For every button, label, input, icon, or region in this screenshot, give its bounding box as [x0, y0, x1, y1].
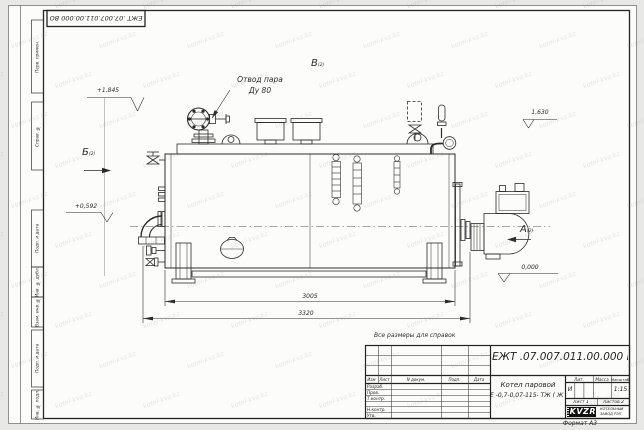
role-utv: Утв. — [367, 413, 391, 418]
col-header-doc: N докум. — [391, 377, 441, 382]
gauge-capsule — [439, 105, 446, 121]
kvzr-logo: KVZR — [567, 407, 596, 418]
margin-box-vzam-inv: Взам. инв. № — [32, 297, 44, 327]
level-mark-1630 — [523, 120, 557, 129]
sheet-number: Лист 1 — [565, 400, 597, 405]
col-header-data: Дата — [468, 377, 490, 382]
margin-box-sprav-no: Справ. № — [32, 102, 44, 170]
steam-outlet-label-line1: Отвод пара — [230, 76, 290, 84]
boiler-shell — [165, 154, 455, 268]
lit-header: Лит. — [565, 377, 593, 382]
margin-box-inv-podl: Инв. № подл. — [32, 390, 44, 419]
view-label-v: В(2) — [311, 59, 324, 70]
col-header-podp: Подп. — [441, 377, 468, 382]
margin-box-podp-data-2: Подп. и дата — [32, 330, 44, 387]
level-value-0592: +0,592 — [66, 204, 106, 210]
skid-frame — [172, 243, 446, 283]
burner-elbow — [139, 212, 166, 245]
level-gauges — [332, 154, 400, 211]
role-razrab: Разраб. — [367, 384, 391, 389]
level-mark-1845 — [87, 98, 144, 112]
burner-assembly — [453, 183, 529, 267]
view-label-b: Б(2) — [82, 148, 95, 159]
deck-hatch-2 — [291, 119, 322, 145]
boiler-deck — [177, 144, 433, 154]
view-arrow-b — [84, 168, 111, 173]
view-label-b-sheet-ref: (2) — [89, 152, 95, 157]
margin-box-inv-dubl: Инв. № дубл. — [32, 267, 44, 297]
company-name-line2: ЗАВОД РЭП — [600, 412, 630, 416]
sheets-total: Листов 2 — [597, 400, 630, 405]
company-name-line1: КОТЕЛЬНЫЙ — [600, 407, 630, 411]
steam-outlet-valve — [188, 108, 230, 144]
role-prov: Пров. — [367, 390, 391, 395]
deck-fittings — [222, 102, 456, 155]
level-value-0000: 0,000 — [508, 265, 552, 271]
gauge-column-2 — [353, 156, 362, 211]
steam-outlet-label-line2: Ду 80 — [244, 87, 276, 95]
hidden-outline — [408, 102, 422, 122]
format-label: Формат А3 — [535, 420, 625, 427]
kvzr-logo-text: KVZR — [570, 407, 596, 416]
title-product-name: Котел паровой — [492, 381, 564, 389]
title-product-code: Е -0,7-0,07-115- ТЖ ( Ж ) — [490, 392, 566, 399]
gauge-column-1 — [332, 154, 341, 204]
burner-control-box — [496, 192, 529, 214]
scale-header: Масштаб — [610, 377, 630, 382]
gauge-column-3 — [394, 156, 400, 194]
role-tkontr: Т.контр. — [367, 396, 391, 401]
level-value-1630: 1,630 — [525, 110, 555, 116]
small-valve — [409, 125, 421, 133]
view-label-a: А(2) — [520, 225, 533, 236]
dimension-3005 — [165, 270, 455, 306]
scale-value: 1:15 — [611, 386, 630, 393]
mass-header: Масса — [593, 377, 611, 382]
corner-stamp: ЕЖТ .07.007.011.00.000 ВО — [47, 10, 145, 26]
role-nkontr: Н.контр. — [367, 407, 391, 412]
left-face-fittings — [139, 152, 166, 266]
view-label-v-sheet-ref: (2) — [318, 63, 324, 68]
reference-note: Все размеры для справок — [374, 333, 455, 339]
lifting-lug-right — [407, 134, 428, 145]
manhole — [221, 238, 244, 259]
dim-value-3005: 3005 — [295, 294, 325, 300]
level-value-1845: +1,845 — [88, 88, 128, 94]
level-mark-0592 — [66, 213, 113, 223]
steam-outlet-leader — [212, 90, 230, 118]
view-label-a-sheet-ref: (2) — [527, 229, 533, 234]
dim-value-3320: 3320 — [291, 311, 321, 317]
title-doc-number: ЕЖТ .07.007.011.00.000 ВО — [492, 351, 628, 363]
col-header-list: Лист — [378, 377, 391, 382]
deck-hatch-1 — [255, 119, 286, 145]
margin-box-perv-primen: Перв. примен. — [32, 20, 44, 93]
drawing-sheet-page: ЕЖТ .07.007.011.00.000 ВО Перв. примен. … — [0, 0, 644, 430]
col-header-izm: Изм — [365, 377, 378, 382]
lit-value: И — [565, 386, 575, 393]
margin-box-podp-data-1: Подп. и дата — [32, 210, 44, 267]
level-mark-0000 — [498, 274, 558, 283]
